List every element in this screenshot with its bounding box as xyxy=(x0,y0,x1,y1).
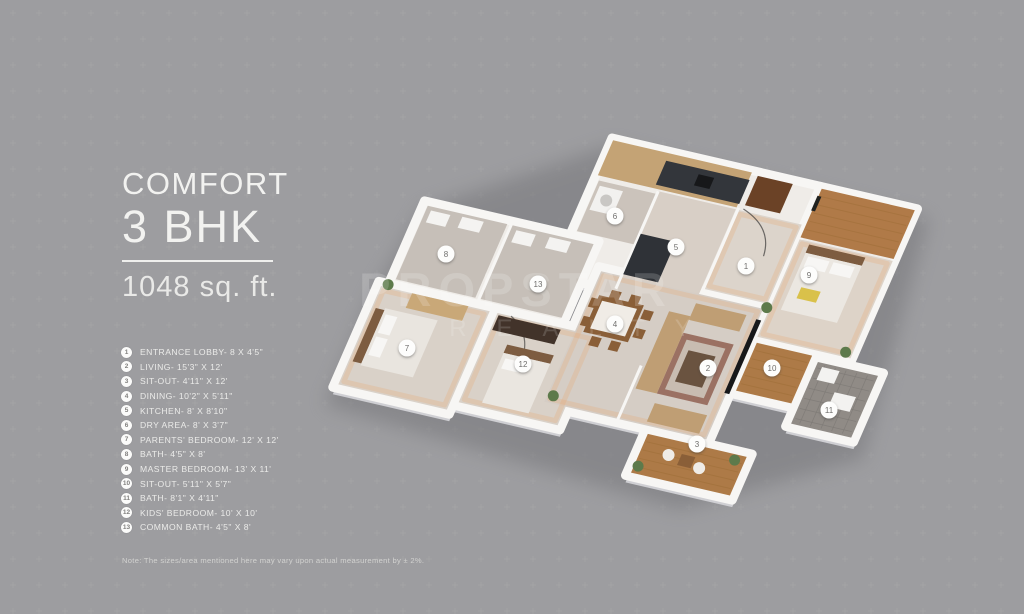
watermark-sub: REALTY xyxy=(449,315,721,342)
legend-item-label: COMMON BATH- 4'5" X 8' xyxy=(140,522,251,532)
plan-marker: 9 xyxy=(801,267,818,284)
legend-item: 9MASTER BEDROOM- 13' X 11' xyxy=(121,462,279,477)
legend-item-label: BATH- 8'1" X 4'11" xyxy=(140,493,219,503)
plan-marker-number: 3 xyxy=(695,440,700,449)
plan-marker-number: 8 xyxy=(444,250,449,259)
plan-marker: 13 xyxy=(530,276,547,293)
plan-marker-number: 2 xyxy=(706,364,711,373)
balcony-chair xyxy=(693,462,705,474)
balcony-chair xyxy=(663,449,675,461)
plan-marker-number: 1 xyxy=(744,262,749,271)
plan-marker-number: 13 xyxy=(534,280,543,289)
legend-item-label: SIT-OUT- 5'11" X 5'7" xyxy=(140,479,231,489)
legend-item-number: 1 xyxy=(121,347,132,358)
title-divider xyxy=(122,260,273,262)
disclaimer-note: Note: The sizes/area mentioned here may … xyxy=(122,556,424,565)
title-block: COMFORT 3 BHK 1048 sq. ft. xyxy=(122,168,289,304)
legend-item-label: MASTER BEDROOM- 13' X 11' xyxy=(140,464,271,474)
plan-marker: 11 xyxy=(821,402,838,419)
plan-marker-number: 7 xyxy=(405,344,410,353)
washing-machine-door xyxy=(600,194,612,206)
legend-item-label: ENTRANCE LOBBY- 8 X 4'5" xyxy=(140,347,263,357)
legend-item: 12KIDS' BEDROOM- 10' X 10' xyxy=(121,506,279,521)
legend-item-label: DINING- 10'2" X 5'11" xyxy=(140,391,233,401)
legend-item-number: 11 xyxy=(121,493,132,504)
legend-item-number: 3 xyxy=(121,376,132,387)
legend-item: 11BATH- 8'1" X 4'11" xyxy=(121,491,279,506)
plant xyxy=(633,461,644,472)
plan-marker: 1 xyxy=(738,258,755,275)
plan-marker-number: 12 xyxy=(519,360,528,369)
plant xyxy=(548,390,559,401)
legend-item-number: 7 xyxy=(121,434,132,445)
plan-marker: 4 xyxy=(607,316,624,333)
legend-item-label: DRY AREA- 8' X 3'7" xyxy=(140,420,228,430)
plan-marker-number: 9 xyxy=(807,271,812,280)
legend-item-number: 13 xyxy=(121,522,132,533)
legend-item-number: 6 xyxy=(121,420,132,431)
legend-item-number: 9 xyxy=(121,464,132,475)
legend-item-label: BATH- 4'5" X 8' xyxy=(140,449,205,459)
plant xyxy=(729,455,740,466)
legend-item: 6DRY AREA- 8' X 3'7" xyxy=(121,418,279,433)
legend-item-label: KIDS' BEDROOM- 10' X 10' xyxy=(140,508,257,518)
plan-marker-number: 5 xyxy=(674,243,679,252)
legend-item: 8BATH- 4'5" X 8' xyxy=(121,447,279,462)
plan-marker: 8 xyxy=(438,246,455,263)
plan-marker-number: 11 xyxy=(825,406,834,415)
legend-item: 10SIT-OUT- 5'11" X 5'7" xyxy=(121,476,279,491)
plan-area: 1048 sq. ft. xyxy=(122,271,289,304)
plan-marker: 3 xyxy=(689,436,706,453)
legend-item-label: SIT-OUT- 4'11" X 12' xyxy=(140,376,228,386)
legend-item-label: LIVING- 15'3" X 12' xyxy=(140,362,223,372)
legend-item: 13COMMON BATH- 4'5" X 8' xyxy=(121,520,279,535)
legend-item: 7PARENTS' BEDROOM- 12' X 12' xyxy=(121,433,279,448)
legend-item-label: KITCHEN- 8' X 8'10" xyxy=(140,406,227,416)
legend-item: 3SIT-OUT- 4'11" X 12' xyxy=(121,374,279,389)
plan-subtitle: 3 BHK xyxy=(122,203,289,250)
plan-marker: 2 xyxy=(700,360,717,377)
plant xyxy=(761,302,772,313)
plan-marker-number: 4 xyxy=(613,320,618,329)
legend-item: 2LIVING- 15'3" X 12' xyxy=(121,360,279,375)
watermark-brand: PROPSTAR xyxy=(359,263,673,316)
plan-marker: 12 xyxy=(515,356,532,373)
legend-item-number: 12 xyxy=(121,507,132,518)
legend-item-number: 2 xyxy=(121,361,132,372)
legend-item-number: 5 xyxy=(121,405,132,416)
room-legend: 1ENTRANCE LOBBY- 8 X 4'5"2LIVING- 15'3" … xyxy=(121,345,279,535)
legend-item: 1ENTRANCE LOBBY- 8 X 4'5" xyxy=(121,345,279,360)
legend-item-number: 4 xyxy=(121,391,132,402)
plan-title: COMFORT xyxy=(122,168,289,201)
plan-marker-number: 10 xyxy=(768,364,777,373)
legend-item: 4DINING- 10'2" X 5'11" xyxy=(121,389,279,404)
plan-marker: 10 xyxy=(764,360,781,377)
plan-marker: 6 xyxy=(607,208,624,225)
plant xyxy=(840,347,851,358)
legend-item-label: PARENTS' BEDROOM- 12' X 12' xyxy=(140,435,279,445)
legend-item-number: 10 xyxy=(121,478,132,489)
legend-item-number: 8 xyxy=(121,449,132,460)
plan-marker: 5 xyxy=(668,239,685,256)
legend-item: 5KITCHEN- 8' X 8'10" xyxy=(121,403,279,418)
plan-marker: 7 xyxy=(399,340,416,357)
plan-marker-number: 6 xyxy=(613,212,618,221)
